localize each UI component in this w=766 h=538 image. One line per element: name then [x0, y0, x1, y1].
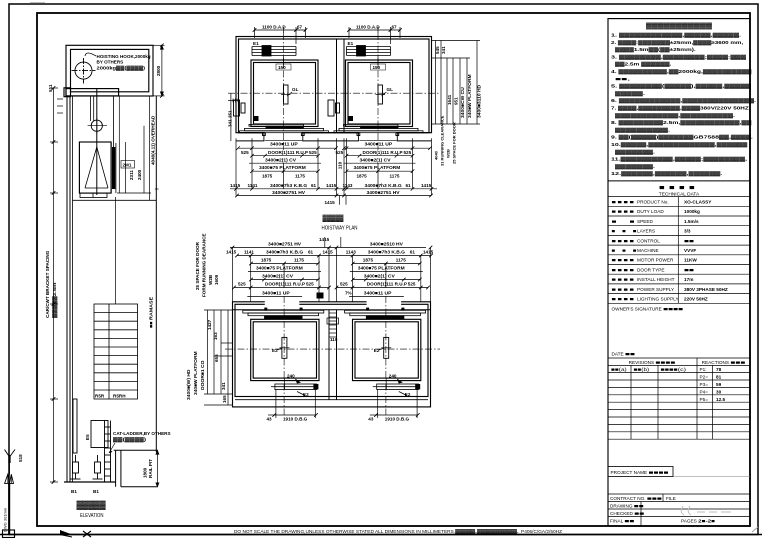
svg-text:■■■■: ■■■■	[612, 287, 636, 292]
svg-text:3400■2(1) CV: 3400■2(1) CV	[265, 158, 297, 163]
svg-text:7%: 7%	[345, 291, 352, 296]
svg-text:■■■■: ■■■■	[612, 267, 636, 272]
svg-text:BY OTHERS: BY OTHERS	[97, 60, 124, 65]
svg-text:PRODUCT No.: PRODUCT No.	[637, 200, 669, 205]
svg-text:ELEVATION: ELEVATION	[80, 513, 104, 519]
svg-text:3400■2751 HV: 3400■2751 HV	[268, 242, 302, 247]
svg-text:220V 50HZ: 220V 50HZ	[684, 297, 708, 302]
svg-text:3400■2510 HV: 3400■2510 HV	[370, 242, 404, 247]
svg-text:DATE ■■: DATE ■■	[612, 352, 636, 357]
svg-text:2400: 2400	[137, 169, 142, 180]
svg-text:4040(4.11) OVERHEAD: 4040(4.11) OVERHEAD	[151, 115, 156, 165]
svg-text:1875: 1875	[357, 174, 368, 179]
svg-text:341 251: 341 251	[228, 110, 233, 127]
svg-text:3400■75 PLATFORM: 3400■75 PLATFORM	[256, 266, 303, 271]
svg-text:3400■2(1) CV: 3400■2(1) CV	[364, 274, 396, 279]
svg-text:CONTROL: CONTROL	[637, 238, 660, 243]
svg-text:3400■2(1) CV: 3400■2(1) CV	[360, 158, 392, 163]
svg-text:1875: 1875	[363, 258, 374, 263]
svg-text:■■■■(c): ■■■■(c)	[661, 367, 687, 372]
svg-text:525: 525	[238, 282, 246, 287]
svg-text:DOOR(1)111 R.U.P: DOOR(1)111 R.U.P	[268, 150, 308, 155]
svg-text:DOOR■1 CO: DOOR■1 CO	[200, 360, 205, 390]
svg-text:67: 67	[297, 25, 303, 30]
svg-text:1415: 1415	[319, 237, 330, 242]
svg-text:78: 78	[716, 367, 722, 372]
svg-text:■ ■: ■ ■	[612, 219, 640, 224]
svg-text:17m: 17m	[684, 277, 693, 282]
svg-text:61: 61	[410, 250, 416, 255]
svg-text:3400■11 UP: 3400■11 UP	[270, 142, 298, 147]
svg-text:340■W PLATFORM: 340■W PLATFORM	[467, 74, 472, 118]
svg-text:P4=: P4=	[700, 389, 709, 394]
svg-text:525: 525	[336, 150, 344, 155]
svg-text:DRAWING ■■: DRAWING ■■	[610, 503, 644, 508]
svg-text:525: 525	[408, 282, 416, 287]
svg-text:3400■7h3 K.B.G: 3400■7h3 K.B.G	[365, 183, 403, 188]
svg-text:■■■■: ■■■■	[612, 238, 636, 243]
svg-text:■■: ■■	[684, 238, 694, 243]
svg-text:■■■■: ■■■■	[612, 200, 636, 205]
svg-text:■■.: ■■.	[615, 76, 630, 81]
svg-text:1641: 1641	[447, 94, 452, 105]
svg-text:■■■■: ■■■■	[612, 277, 636, 282]
svg-text:■ ■ ■: ■ ■ ■	[612, 248, 640, 253]
svg-text:3400■2751 HV: 3400■2751 HV	[367, 190, 401, 195]
svg-text:DOOR(1)111 R.U.P: DOOR(1)111 R.U.P	[367, 282, 407, 287]
svg-text:3400■CW CU: 3400■CW CU	[460, 86, 465, 118]
svg-text:RAIL PIT: RAIL PIT	[148, 459, 153, 478]
svg-text:E5: E5	[85, 434, 90, 440]
svg-text:P3=: P3=	[700, 382, 709, 387]
svg-text:CONTRACT NO. ■■■: CONTRACT NO. ■■■	[610, 496, 662, 501]
svg-text:CAT-LADDER,BY OTHERS: CAT-LADDER,BY OTHERS	[113, 431, 171, 436]
svg-text:67: 67	[392, 25, 398, 30]
svg-text:DOOR(1)111 R.U.P: DOOR(1)111 R.U.P	[265, 282, 305, 287]
svg-text:P2=: P2=	[700, 375, 709, 380]
svg-text:3400■(W) HD: 3400■(W) HD	[186, 369, 191, 400]
svg-text:CAR/CWT BRACKET SPACING: CAR/CWT BRACKET SPACING	[45, 250, 50, 318]
svg-text:1175: 1175	[294, 258, 304, 263]
svg-text:655: 655	[214, 354, 219, 362]
svg-text:1141: 1141	[248, 183, 258, 188]
svg-text:30: 30	[716, 389, 722, 394]
svg-text:4040: 4040	[434, 150, 439, 160]
svg-text:1175: 1175	[390, 174, 400, 179]
svg-text:1875: 1875	[261, 258, 272, 263]
svg-text:HOISTING HOOK,2000kg: HOISTING HOOK,2000kg	[97, 54, 151, 59]
svg-text:POWER SUPPLY: POWER SUPPLY	[637, 287, 675, 292]
svg-text:1415: 1415	[323, 250, 334, 255]
svg-text:SPEED: SPEED	[637, 219, 654, 224]
svg-text:3400■2751 HV: 3400■2751 HV	[272, 190, 306, 195]
svg-text:PAGES 2■-2■: PAGES 2■-2■	[681, 518, 715, 523]
svg-text:525: 525	[404, 150, 412, 155]
svg-text:W2B: W2B	[208, 274, 213, 285]
svg-text:1800: 1800	[143, 467, 148, 478]
svg-text:LIGHTING SUPPLY: LIGHTING SUPPLY	[637, 297, 679, 302]
svg-text:DOOR(1)111 R.U.P: DOOR(1)111 R.U.P	[363, 150, 403, 155]
svg-text:25 SPACE FOR DOOR: 25 SPACE FOR DOOR	[195, 241, 200, 290]
svg-text:XO-CLASSY: XO-CLASSY	[684, 200, 712, 205]
svg-text:PROJECT NAME ■■■■: PROJECT NAME ■■■■	[611, 470, 669, 475]
svg-text:1175: 1175	[295, 174, 305, 179]
svg-text:■■■■: ■■■■	[659, 185, 699, 192]
svg-text:FILE: FILE	[666, 496, 676, 501]
svg-text:■■: ■■	[684, 267, 694, 272]
svg-text:3400■7h3 K.B.G: 3400■7h3 K.B.G	[368, 250, 406, 255]
svg-text:12.5: 12.5	[716, 397, 726, 402]
svg-text:P1:: P1:	[700, 367, 707, 372]
svg-text:■ ■ ■: ■ ■ ■	[612, 229, 640, 234]
svg-text:518: 518	[18, 454, 23, 462]
svg-text:3400■7h3 K.B.G: 3400■7h3 K.B.G	[266, 250, 304, 255]
svg-text:11KW: 11KW	[684, 258, 697, 263]
svg-text:INSTALL HEIGHT: INSTALL HEIGHT	[637, 277, 675, 282]
svg-text:DWG 301mm: DWG 301mm	[3, 507, 8, 532]
svg-text:25 SPACE FOR DOOR: 25 SPACE FOR DOOR	[452, 122, 457, 164]
svg-text:DO NOT SCALE THE DRAWING,UNLES: DO NOT SCALE THE DRAWING,UNLESS OTHERWIS…	[234, 528, 562, 535]
svg-text:951: 951	[454, 97, 459, 105]
svg-text:OWNER'S SIGNATURE ■■■■: OWNER'S SIGNATURE ■■■■	[612, 307, 684, 312]
svg-text:■■■■: ■■■■	[612, 209, 636, 214]
svg-text:3/3: 3/3	[684, 229, 691, 234]
svg-text:1875: 1875	[262, 174, 273, 179]
svg-text:1000kg: 1000kg	[684, 209, 700, 214]
svg-text:525: 525	[309, 150, 317, 155]
svg-text:525: 525	[241, 150, 249, 155]
svg-text:3400■75 PLATFORM: 3400■75 PLATFORM	[259, 165, 306, 170]
svg-text:MOTOR POWER: MOTOR POWER	[637, 258, 674, 263]
svg-text:3400■11 UP: 3400■11 UP	[365, 142, 393, 147]
svg-text:MACHINE: MACHINE	[637, 248, 659, 253]
svg-text:3400■3110 HD: 3400■3110 HD	[477, 84, 482, 118]
svg-text:CHECKED ■■: CHECKED ■■	[610, 511, 645, 516]
svg-text:341: 341	[221, 382, 226, 390]
svg-text:2311: 2311	[129, 170, 134, 180]
svg-text:1175: 1175	[396, 258, 406, 263]
svg-text:1143: 1143	[346, 250, 356, 255]
svg-text:61: 61	[406, 183, 412, 188]
svg-text:1415: 1415	[226, 250, 237, 255]
svg-text:1415: 1415	[421, 183, 432, 188]
svg-text:REACTIONS ■■■: REACTIONS ■■■	[702, 360, 746, 365]
svg-text:61: 61	[308, 250, 314, 255]
svg-text:▓▓▓▓▓: ▓▓▓▓▓	[323, 214, 344, 222]
svg-text:P5=: P5=	[700, 397, 709, 402]
svg-text:1141: 1141	[244, 250, 254, 255]
svg-text:LAYERS: LAYERS	[637, 229, 655, 234]
svg-text:511: 511	[48, 84, 53, 92]
svg-text:B1: B1	[93, 489, 99, 494]
svg-text:3400■7h3 K.B.G: 3400■7h3 K.B.G	[270, 183, 308, 188]
svg-text:110: 110	[330, 337, 338, 342]
svg-text:■■■■: ■■■■	[612, 297, 636, 302]
svg-text:W2B: W2B	[446, 149, 451, 158]
svg-text:3400■75 PLATFORM: 3400■75 PLATFORM	[358, 266, 405, 271]
svg-text:1100 D.A.D: 1100 D.A.D	[262, 25, 286, 30]
svg-text:▓▓▓▓▓: ▓▓▓▓▓	[77, 500, 107, 511]
svg-text:B1: B1	[71, 489, 77, 494]
svg-text:1143: 1143	[343, 183, 353, 188]
svg-text:380V 3PHASE 50HZ: 380V 3PHASE 50HZ	[684, 287, 728, 292]
svg-text:3400■11 UP: 3400■11 UP	[364, 291, 392, 296]
svg-text:■■(b): ■■(b)	[634, 367, 650, 372]
svg-text:525: 525	[306, 282, 314, 287]
svg-text:61: 61	[311, 183, 317, 188]
svg-text:1609: 1609	[214, 274, 219, 285]
svg-text:81: 81	[716, 375, 722, 380]
svg-text:■■■■: ■■■■	[612, 258, 636, 263]
svg-text:R5R: R5R	[95, 394, 105, 399]
svg-text:▓▓▓▓▓▓▓▓▓▓▓: ▓▓▓▓▓▓▓▓▓▓▓	[646, 23, 713, 30]
svg-text:R5RH: R5RH	[113, 394, 126, 399]
svg-text:59: 59	[716, 382, 722, 387]
svg-text:1415: 1415	[423, 250, 434, 255]
svg-text:HOISTWAY PLAN: HOISTWAY PLAN	[322, 226, 358, 232]
svg-text:VVVF: VVVF	[684, 248, 696, 253]
svg-text:110: 110	[338, 161, 343, 169]
svg-text:3400■75 PLATFORM: 3400■75 PLATFORM	[354, 165, 401, 170]
svg-text:1415: 1415	[325, 200, 336, 205]
svg-text:1.5m/s: 1.5m/s	[684, 219, 699, 224]
svg-text:3400■11 UP: 3400■11 UP	[262, 291, 290, 296]
svg-text:■■(a): ■■(a)	[611, 367, 627, 372]
svg-text:2800: 2800	[156, 65, 161, 76]
svg-text:1100 D.A.D: 1100 D.A.D	[356, 25, 380, 30]
svg-text:DOOR TYPE: DOOR TYPE	[637, 267, 665, 272]
svg-text:525: 525	[340, 282, 348, 287]
svg-text:1415: 1415	[230, 183, 241, 188]
svg-text:165: 165	[222, 395, 227, 403]
svg-text:REVISIONS ■■■■: REVISIONS ■■■■	[629, 360, 676, 365]
svg-text:1415: 1415	[326, 183, 337, 188]
svg-text:341: 341	[441, 46, 446, 54]
svg-text:FINAL ■■: FINAL ■■	[610, 518, 635, 523]
svg-text:340■W PLATFORM: 340■W PLATFORM	[193, 351, 198, 395]
svg-text:31 RUNNING CLEARANCE: 31 RUNNING CLEARANCE	[440, 115, 445, 166]
svg-text:FORM RUNNING DEARANCE: FORM RUNNING DEARANCE	[202, 233, 207, 297]
svg-text:3400■2(1) CV: 3400■2(1) CV	[262, 274, 294, 279]
svg-text:■■ RAMASE: ■■ RAMASE	[149, 297, 154, 328]
svg-text:545: 545	[435, 46, 440, 54]
svg-text:2M1: 2M1	[123, 163, 132, 168]
svg-text:DUTY LOAD: DUTY LOAD	[637, 209, 664, 214]
